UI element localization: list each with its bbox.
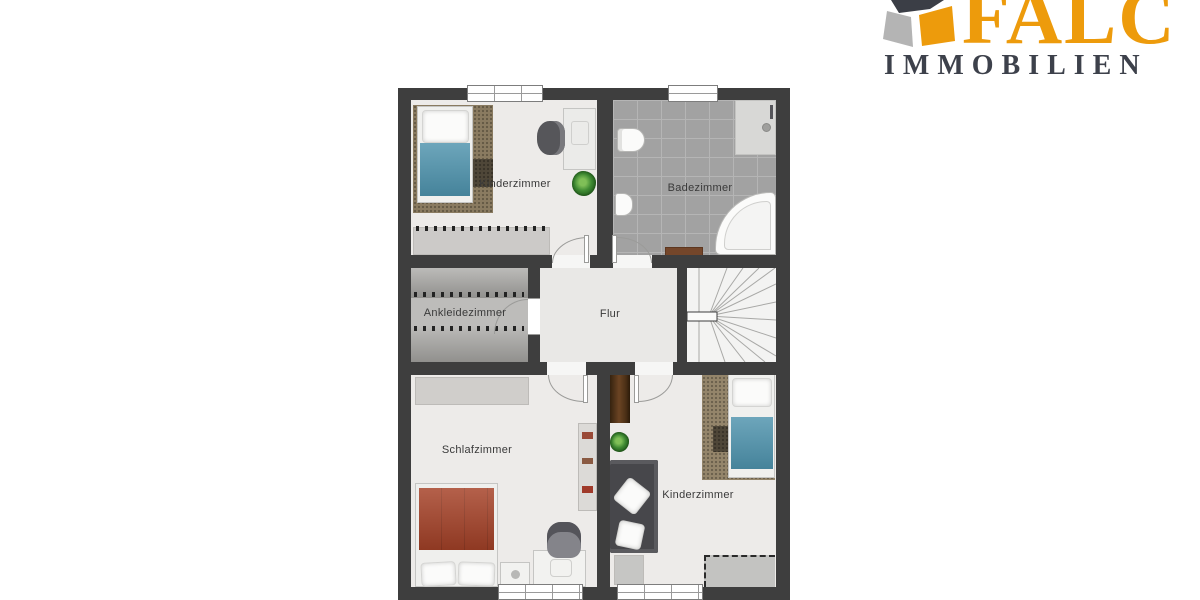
room-label-kinderzimmer-bottom: Kinderzimmer	[662, 489, 733, 501]
ottoman-icon	[614, 555, 644, 585]
shower-fixture-icon	[770, 105, 773, 119]
cushion-icon	[615, 520, 646, 551]
floor-plan-page: FALC IMMOBILIEN	[0, 0, 1200, 600]
shelf-items-icon	[582, 458, 593, 464]
shelf-items-icon	[582, 432, 593, 439]
dresser-items-icon	[416, 226, 548, 231]
door-icon	[584, 235, 589, 263]
wall	[597, 375, 610, 587]
chair-icon	[537, 121, 565, 155]
door-icon	[612, 235, 617, 263]
window-icon	[498, 584, 583, 600]
wall	[398, 88, 411, 600]
blanket-icon	[731, 417, 773, 469]
room-label-badezimmer: Badezimmer	[668, 182, 733, 194]
brand-subtitle: IMMOBILIEN	[884, 52, 1148, 80]
shelf-icon	[578, 423, 597, 511]
desk-icon	[563, 108, 596, 170]
shelf-items-icon	[582, 486, 593, 493]
door-icon	[583, 375, 588, 403]
house-icon	[878, 0, 962, 52]
stairs-icon	[687, 268, 776, 362]
room-label-schlafzimmer: Schlafzimmer	[442, 444, 512, 456]
desk-detail	[571, 121, 589, 145]
toilet-icon	[617, 128, 645, 152]
blanket-icon	[420, 143, 470, 196]
double-bed-icon	[415, 483, 498, 587]
staircase	[687, 268, 776, 362]
brand-name: FALC	[962, 0, 1177, 56]
floor-plan: Kinderzimmer Badezimmer Ankleidezimmer F…	[398, 85, 790, 600]
shower-head-icon	[762, 123, 771, 132]
room-label-ankleidezimmer: Ankleidezimmer	[424, 307, 506, 319]
chair-icon	[547, 522, 581, 558]
room-label-flur: Flur	[600, 308, 620, 320]
wall	[677, 268, 687, 362]
pillow-icon	[422, 110, 469, 143]
pillow-icon	[420, 561, 456, 587]
shower-icon	[735, 100, 776, 155]
wall	[398, 88, 790, 100]
desk-detail	[550, 559, 572, 577]
bathtub-basin	[724, 201, 771, 250]
door-opening	[635, 362, 673, 375]
pillow-icon	[458, 561, 496, 586]
door-opening	[547, 362, 586, 375]
wall	[776, 88, 790, 600]
window-icon	[668, 85, 718, 102]
wall	[411, 362, 776, 375]
dresser-icon	[413, 227, 550, 255]
wardrobe-icon	[610, 375, 630, 423]
bed-icon	[417, 106, 473, 203]
rug-icon	[704, 555, 775, 587]
door-icon	[634, 375, 639, 403]
wardrobe-icon	[415, 377, 529, 405]
closet-items-icon	[414, 292, 524, 297]
wall	[411, 255, 776, 268]
wall	[398, 587, 790, 600]
cushion-icon	[612, 476, 651, 515]
duvet-icon	[419, 488, 494, 550]
window-icon	[617, 584, 703, 600]
knob-icon	[511, 570, 520, 579]
bed-icon	[728, 374, 775, 478]
sofa-icon	[610, 460, 658, 553]
door-opening	[528, 298, 540, 335]
window-icon	[467, 85, 543, 102]
brand-logo: FALC IMMOBILIEN	[878, 0, 1200, 96]
room-label-kinderzimmer-top: Kinderzimmer	[479, 178, 550, 190]
sink-icon	[615, 193, 633, 216]
pillow-icon	[732, 378, 772, 407]
wall	[597, 100, 613, 255]
